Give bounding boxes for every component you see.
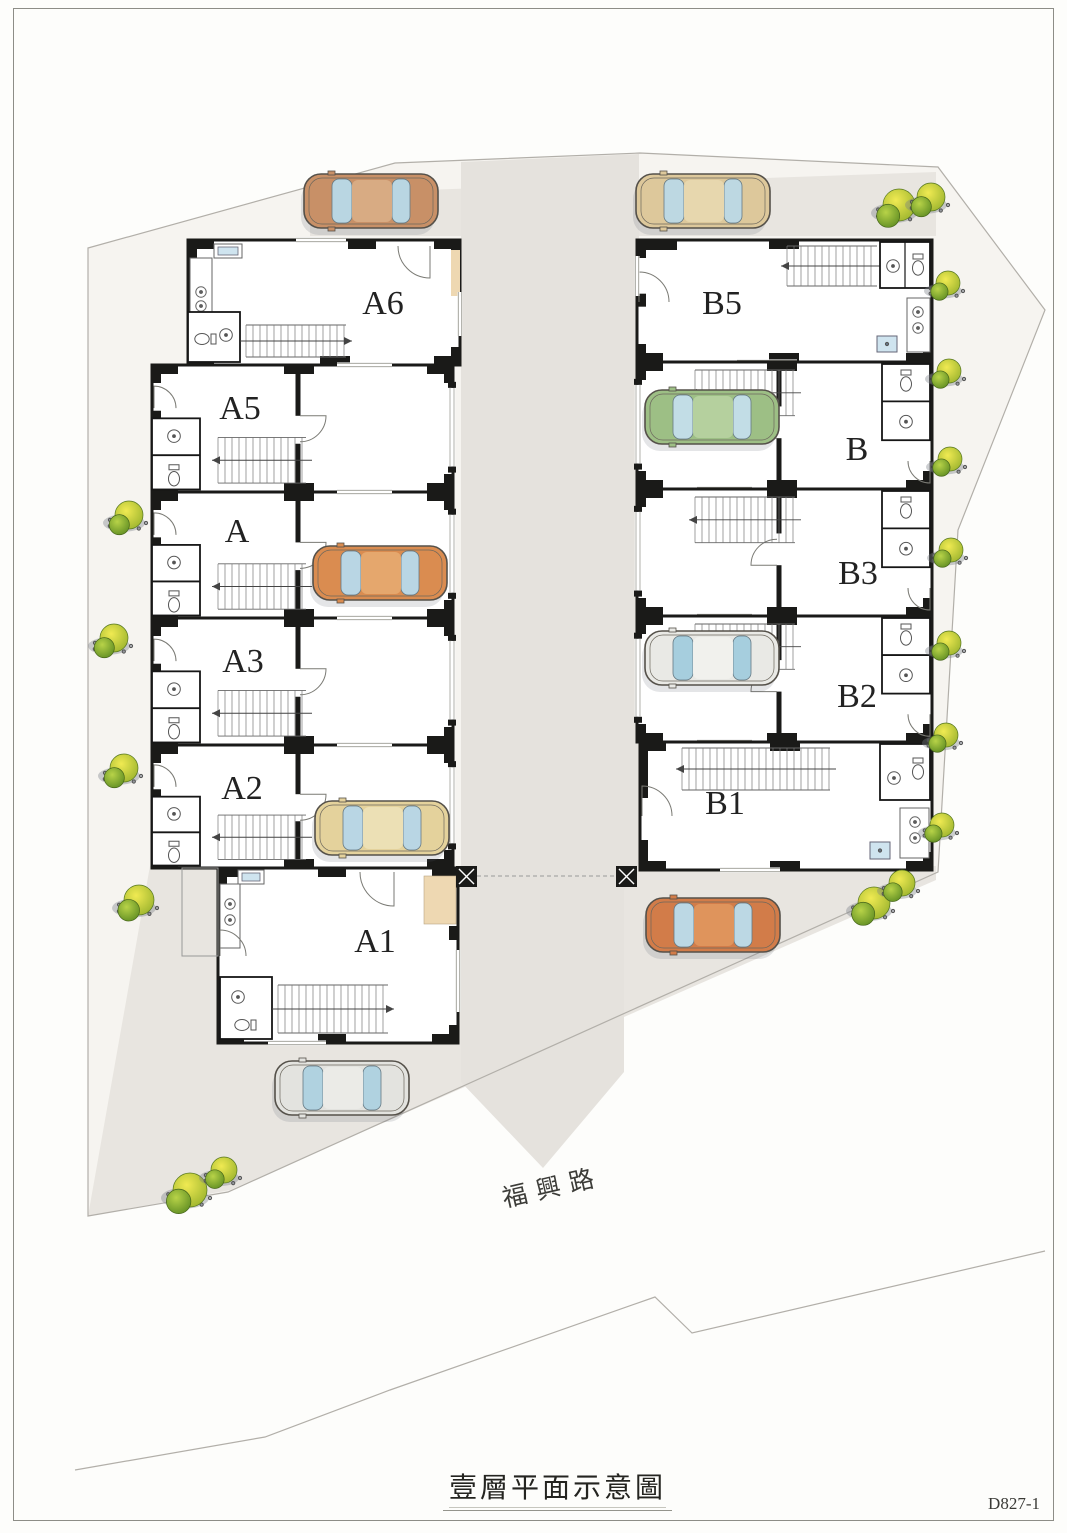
unit-B3: B3 <box>634 489 932 619</box>
white-car-unit-b2 <box>642 628 779 692</box>
orange-car-bottom-right <box>643 895 780 959</box>
gate-column <box>616 866 637 887</box>
unit-label-A2: A2 <box>221 770 263 807</box>
unit-label-B1: B1 <box>705 785 745 822</box>
tan-car-top-left <box>301 171 438 235</box>
unit-A5: A5 <box>152 362 456 492</box>
green-car-unit-b <box>642 387 779 451</box>
unit-A3: A3 <box>152 615 456 745</box>
unit-label-A: A <box>225 513 250 550</box>
site-plan-drawing: A6A5AA3A2A1B5BB3B2B1 <box>0 0 1067 1533</box>
unit-label-A5: A5 <box>219 390 261 427</box>
unit-B1: B1 <box>638 742 932 873</box>
orange-car-unit-a <box>310 543 447 607</box>
unit-label-A6: A6 <box>362 285 404 322</box>
unit-A6: A6 <box>188 237 463 365</box>
plan-title: 壹層平面示意圖 <box>443 1466 672 1511</box>
gate-column <box>456 866 477 887</box>
unit-label-B: B <box>846 431 869 468</box>
drawing-number: D827-1 <box>930 1494 1040 1514</box>
unit-label-B5: B5 <box>702 285 742 322</box>
unit-label-A3: A3 <box>222 643 264 680</box>
cream-car-unit-a2 <box>312 798 449 862</box>
khaki-car-top-right <box>633 171 770 235</box>
page: A6A5AA3A2A1B5BB3B2B1 福興路 壹層平面示意圖 D827-1 <box>0 0 1067 1533</box>
unit-A1: A1 <box>182 868 461 1046</box>
unit-label-B2: B2 <box>837 678 877 715</box>
silver-car-bottom-left <box>272 1058 409 1122</box>
unit-B5: B5 <box>634 240 932 365</box>
unit-label-B3: B3 <box>838 555 878 592</box>
unit-label-A1: A1 <box>354 923 396 960</box>
